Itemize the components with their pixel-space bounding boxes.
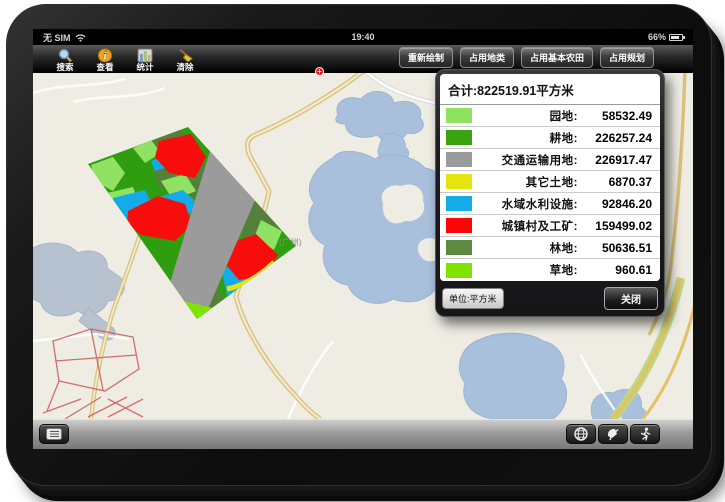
row-value: 6870.37 [578,175,654,189]
gps-locate-button[interactable] [598,424,628,444]
color-swatch [446,152,472,167]
toolbar-button-search[interactable]: 搜索 [45,48,85,72]
map-marker[interactable]: + [315,67,324,76]
legend-row-other-land: 其它土地: 6870.37 [440,171,660,193]
status-bar: 无 SIM 19:40 66% [33,29,693,45]
color-swatch [446,196,472,211]
occupied-basic-farmland-button[interactable]: 占用基本农田 [521,47,593,68]
unit-button[interactable]: 单位:平方米 [442,288,504,309]
globe-icon [574,427,588,441]
legend-row-forest: 林地: 50636.51 [440,237,660,259]
row-label: 园地: [472,108,578,124]
color-swatch [446,263,472,278]
row-label: 草地: [472,262,578,278]
toolbar-button-clear[interactable]: 清除 [165,48,205,72]
svg-text:i: i [104,51,107,62]
battery-icon [669,34,683,41]
bar-chart-icon [137,48,153,63]
row-label: 城镇村及工矿: [472,218,578,234]
toolbar-button-view[interactable]: i 查看 [85,48,125,72]
panel-footer: 单位:平方米 关闭 [440,281,660,311]
clock-label: 19:40 [33,32,693,42]
legend-row-cropland: 耕地: 226257.24 [440,127,660,149]
toolbar-button-statistics[interactable]: 统计 [125,48,165,72]
legend-row-transport: 交通运输用地: 226917.47 [440,149,660,171]
close-button[interactable]: 关闭 [604,287,658,310]
legend-row-orchard: 园地: 58532.49 [440,105,660,127]
row-label: 水域水利设施: [472,196,578,212]
occupied-planning-button[interactable]: 占用规划 [600,47,654,68]
color-swatch [446,108,472,123]
panel-title: 合计:822519.91平方米 [440,74,660,105]
row-label: 其它土地: [472,174,578,190]
app-screen: 无 SIM 19:40 66% 搜索 [33,29,693,449]
info-icon: i [97,48,113,63]
color-swatch [446,174,472,189]
color-swatch [446,130,472,145]
track-walk-button[interactable] [630,424,660,444]
occupied-land-type-button[interactable]: 占用地类 [460,47,514,68]
color-swatch [446,218,472,233]
bottom-bar [33,419,693,449]
redraw-button[interactable]: 重新绘制 [399,47,453,68]
list-icon [46,428,62,440]
row-label: 林地: [472,240,578,256]
stats-panel: 合计:822519.91平方米 园地: 58532.49 耕地: 226257.… [435,69,665,317]
color-swatch [446,240,472,255]
legend-row-urban-industrial: 城镇村及工矿: 159499.02 [440,215,660,237]
toolbar-button-label: 统计 [136,63,153,72]
layer-list-button[interactable] [39,424,69,444]
row-value: 226917.47 [578,153,654,167]
row-label: 交通运输用地: [472,152,578,168]
row-value: 50636.51 [578,241,654,255]
legend-row-grassland: 草地: 960.61 [440,259,660,281]
row-value: 92846.20 [578,197,654,211]
toolbar-button-label: 查看 [96,63,113,72]
row-label: 耕地: [472,130,578,146]
globe-button[interactable] [566,424,596,444]
runner-icon [638,427,652,441]
row-value: 226257.24 [578,131,654,145]
row-value: 58532.49 [578,109,654,123]
legend-row-water-facilities: 水域水利设施: 92846.20 [440,193,660,215]
row-value: 159499.02 [578,219,654,233]
broom-icon [177,48,193,63]
device-frame: 无 SIM 19:40 66% 搜索 [6,4,712,486]
satellite-dish-icon [606,427,620,441]
toolbar-button-label: 搜索 [56,63,73,72]
toolbar-button-label: 清除 [176,63,193,72]
map-label-guangzhou: (广州) [279,237,302,247]
row-value: 960.61 [578,263,654,277]
search-icon [57,48,73,63]
